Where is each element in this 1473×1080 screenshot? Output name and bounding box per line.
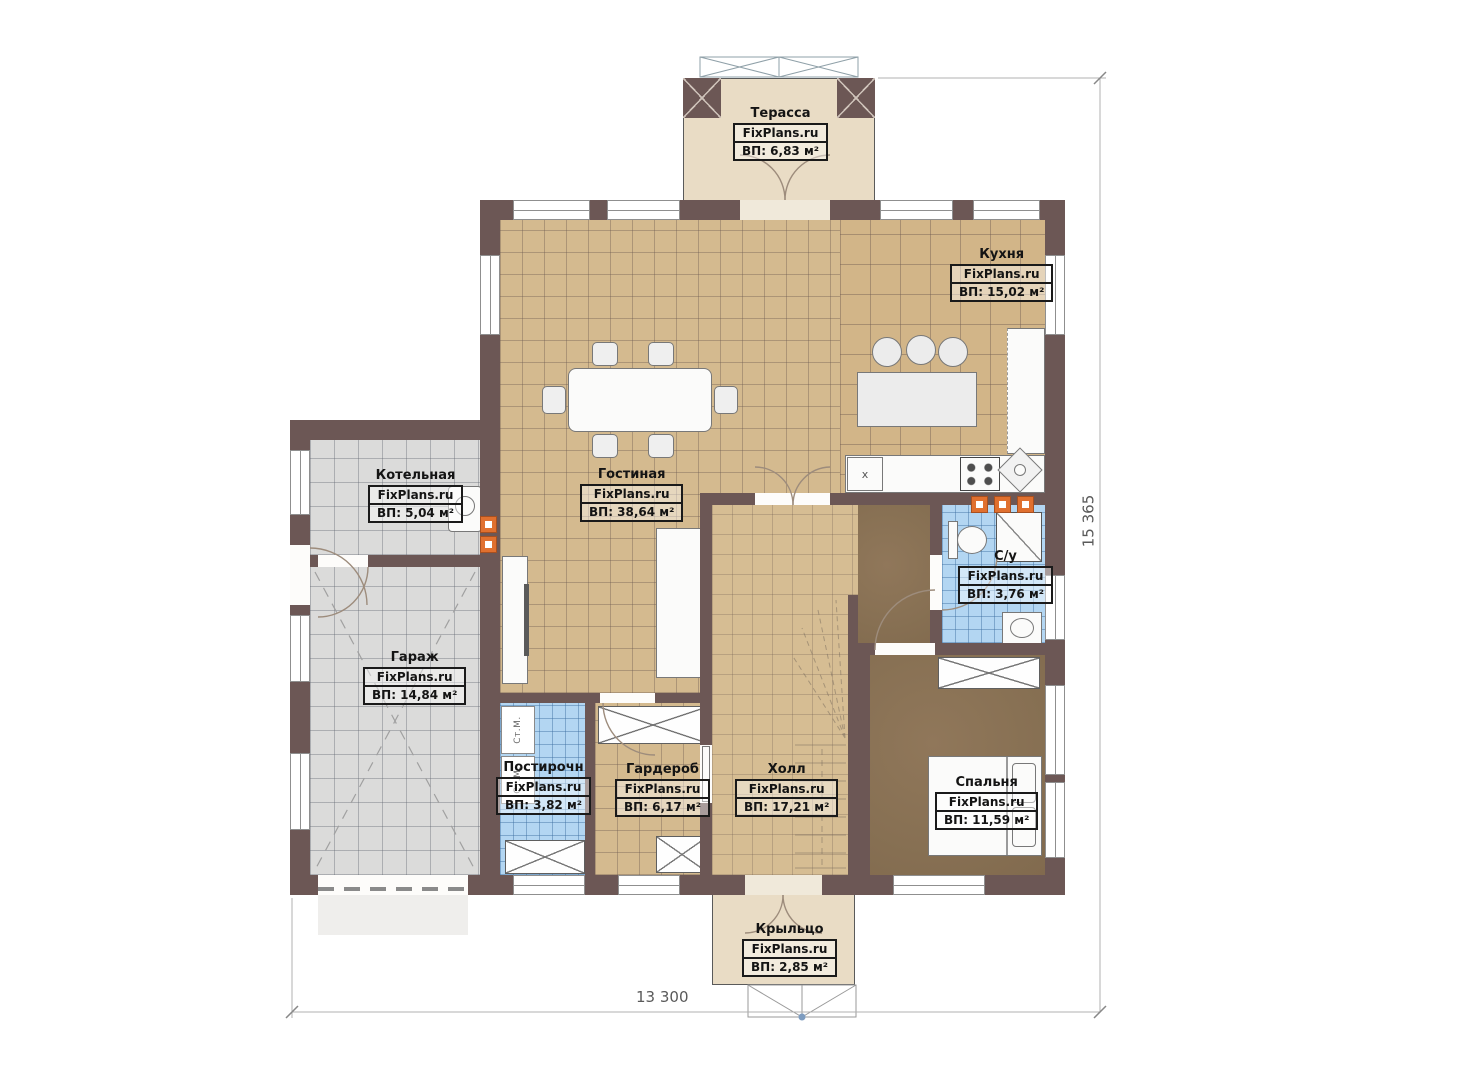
brand-watermark: FixPlans.ru <box>617 781 708 797</box>
room-area: ВП: 2,85 м² <box>744 957 835 975</box>
brand-watermark: FixPlans.ru <box>498 779 589 795</box>
wall-living-hall-h <box>700 493 1045 505</box>
room-label-bedroom: Спальня FixPlans.ru ВП: 11,59 м² <box>935 775 1038 830</box>
chair <box>648 434 674 458</box>
room-area: ВП: 38,64 м² <box>582 502 681 520</box>
terrace-pier <box>683 78 721 118</box>
window <box>290 615 310 682</box>
window <box>973 200 1040 220</box>
label-box: FixPlans.ru ВП: 15,02 м² <box>950 264 1053 302</box>
washing-machine: Ст.М. <box>501 706 535 754</box>
brand-watermark: FixPlans.ru <box>960 568 1051 584</box>
window <box>290 753 310 830</box>
dining-table <box>568 368 712 432</box>
chair <box>714 386 738 414</box>
door-gap-wardrobe <box>600 693 655 703</box>
room-label-garage: Гараж FixPlans.ru ВП: 14,84 м² <box>363 650 466 705</box>
room-area: ВП: 14,84 м² <box>365 685 464 703</box>
terrace-roof-truss <box>700 57 858 77</box>
door-gap-hall <box>755 493 830 505</box>
dishwasher-label: x <box>862 468 869 481</box>
window <box>1045 685 1065 775</box>
kitchen-counter-right <box>1007 328 1045 454</box>
brand-watermark: FixPlans.ru <box>952 266 1051 282</box>
door-gap-porch <box>745 875 822 895</box>
washing-machine-label: Ст.М. <box>513 716 523 744</box>
bathroom-sink-basin <box>1010 618 1034 638</box>
label-box: FixPlans.ru ВП: 5,04 м² <box>368 485 463 523</box>
floor-hall <box>712 505 858 875</box>
door-gap-boiler-garage <box>318 555 368 567</box>
garage-apron <box>318 895 468 935</box>
window <box>607 200 680 220</box>
chair <box>542 386 566 414</box>
porch-steps <box>748 985 856 1021</box>
brand-watermark: FixPlans.ru <box>737 781 836 797</box>
room-label-living: Гостиная FixPlans.ru ВП: 38,64 м² <box>580 467 683 522</box>
window <box>618 875 680 895</box>
floor-plan: x Ст.М. Ст.М. <box>0 0 1473 1080</box>
window <box>1045 782 1065 858</box>
room-name: С/у <box>994 549 1017 564</box>
room-area: ВП: 5,04 м² <box>370 503 461 521</box>
label-box: FixPlans.ru ВП: 3,76 м² <box>958 566 1053 604</box>
room-name: Спальня <box>956 775 1018 790</box>
bar-stool <box>872 337 902 367</box>
wall-bedroom-left <box>858 655 870 875</box>
wardrobe-cabinet <box>598 706 708 744</box>
kitchen-island <box>857 372 977 427</box>
brand-watermark: FixPlans.ru <box>365 669 464 685</box>
door-gap-annex-entry <box>290 545 310 605</box>
room-name: Постирочн <box>503 760 583 775</box>
garage-door-gap <box>318 875 468 895</box>
dishwasher: x <box>847 457 883 491</box>
window <box>290 450 310 515</box>
terrace-pier <box>837 78 875 118</box>
room-name: Крыльцо <box>756 922 824 937</box>
label-box: FixPlans.ru ВП: 6,83 м² <box>733 123 828 161</box>
bar-stool <box>938 337 968 367</box>
door-gap-terrace <box>740 200 830 220</box>
room-label-terrace: Терасса FixPlans.ru ВП: 6,83 м² <box>733 106 828 161</box>
room-label-boiler: Котельная FixPlans.ru ВП: 5,04 м² <box>368 468 463 523</box>
radiator <box>995 497 1010 512</box>
room-area: ВП: 6,83 м² <box>735 141 826 159</box>
room-area: ВП: 3,76 м² <box>960 584 1051 602</box>
label-box: FixPlans.ru ВП: 14,84 м² <box>363 667 466 705</box>
room-label-porch: Крыльцо FixPlans.ru ВП: 2,85 м² <box>742 922 837 977</box>
dimension-bottom: 13 300 <box>636 988 689 1006</box>
label-box: FixPlans.ru ВП: 38,64 м² <box>580 484 683 522</box>
window <box>513 200 590 220</box>
room-label-laundry: Постирочн FixPlans.ru ВП: 3,82 м² <box>496 760 591 815</box>
stove <box>960 457 1000 491</box>
radiator <box>1018 497 1033 512</box>
brand-watermark: FixPlans.ru <box>744 941 835 957</box>
room-area: ВП: 15,02 м² <box>952 282 1051 300</box>
dimension-right: 15 365 <box>1079 495 1097 548</box>
label-box: FixPlans.ru ВП: 17,21 м² <box>735 779 838 817</box>
label-box: FixPlans.ru ВП: 11,59 м² <box>935 792 1038 830</box>
room-name: Гардероб <box>626 762 699 777</box>
room-area: ВП: 11,59 м² <box>937 810 1036 828</box>
label-box: FixPlans.ru ВП: 3,82 м² <box>496 777 591 815</box>
room-name: Холл <box>768 762 806 777</box>
window <box>880 200 953 220</box>
room-area: ВП: 6,17 м² <box>617 797 708 815</box>
wall-living-hall-v <box>700 505 712 875</box>
chair <box>648 342 674 366</box>
room-name: Терасса <box>751 106 811 121</box>
room-label-hall: Холл FixPlans.ru ВП: 17,21 м² <box>735 762 838 817</box>
room-label-kitchen: Кухня FixPlans.ru ВП: 15,02 м² <box>950 247 1053 302</box>
room-name: Кухня <box>979 247 1024 262</box>
bedroom-wardrobe <box>938 657 1040 689</box>
brand-watermark: FixPlans.ru <box>582 486 681 502</box>
label-box: FixPlans.ru ВП: 6,17 м² <box>615 779 710 817</box>
room-name: Гараж <box>391 650 439 665</box>
window <box>893 875 985 895</box>
room-label-bathroom: С/у FixPlans.ru ВП: 3,76 м² <box>958 549 1053 604</box>
label-box: FixPlans.ru ВП: 2,85 м² <box>742 939 837 977</box>
window <box>480 255 500 335</box>
room-name: Гостиная <box>598 467 666 482</box>
radiator <box>481 537 496 552</box>
brand-watermark: FixPlans.ru <box>735 125 826 141</box>
wall-annex-top <box>290 420 480 440</box>
radiator <box>972 497 987 512</box>
radiator <box>481 517 496 532</box>
window <box>513 875 585 895</box>
floor-vestibule <box>858 505 930 655</box>
floor-garage <box>310 567 480 875</box>
wall-stair <box>848 595 858 875</box>
door-gap-bathroom <box>930 555 942 610</box>
room-name: Котельная <box>376 468 456 483</box>
room-area: ВП: 3,82 м² <box>498 795 589 813</box>
brand-watermark: FixPlans.ru <box>937 794 1036 810</box>
laundry-cabinet <box>505 840 585 874</box>
tv <box>524 584 529 656</box>
room-area: ВП: 17,21 м² <box>737 797 836 815</box>
bar-stool <box>906 335 936 365</box>
brand-watermark: FixPlans.ru <box>370 487 461 503</box>
chair <box>592 342 618 366</box>
door-gap-bedroom <box>875 643 935 655</box>
room-label-wardrobe: Гардероб FixPlans.ru ВП: 6,17 м² <box>615 762 710 817</box>
sink-basin <box>1014 464 1026 476</box>
chair <box>592 434 618 458</box>
